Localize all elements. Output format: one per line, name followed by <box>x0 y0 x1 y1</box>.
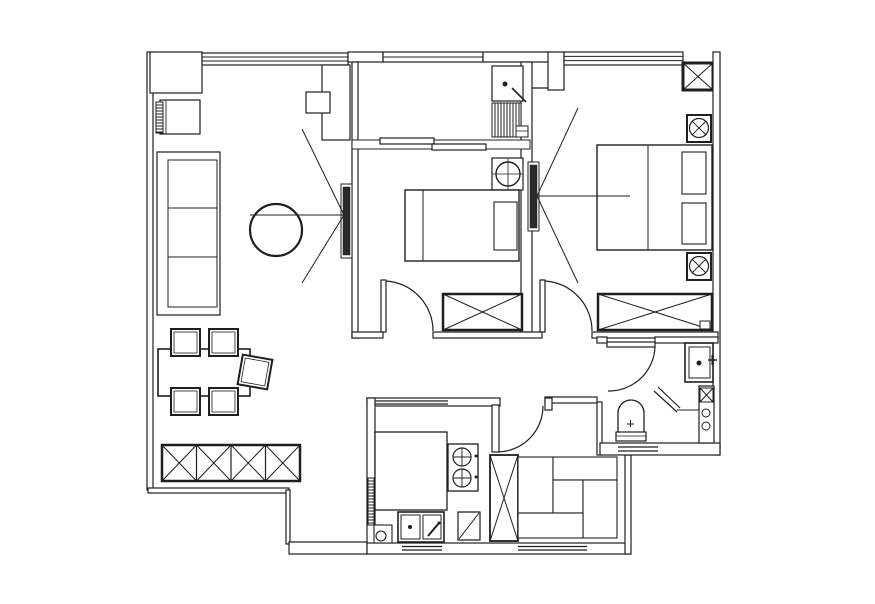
washing-machine <box>492 66 526 102</box>
shower-unit <box>654 386 714 443</box>
jamb-kitchen-door <box>545 398 552 410</box>
dining-chair-4 <box>209 388 238 415</box>
wall-bath-north-a <box>597 337 607 343</box>
coffee-table-round <box>250 204 302 256</box>
toilet <box>616 400 646 441</box>
wall-east-lower <box>625 455 631 554</box>
nightstand-bedroom2-b <box>687 253 711 280</box>
door-bathroom <box>607 342 655 391</box>
column-top-right <box>683 63 713 90</box>
dining-chair-1 <box>171 329 200 356</box>
entry-floor-mosaic <box>518 457 617 538</box>
floorplan-page <box>0 0 875 604</box>
dining-chair-3 <box>171 388 200 415</box>
wall-south-kitchen <box>367 543 630 554</box>
wall-step-west <box>286 490 290 544</box>
wardrobe-bedroom1 <box>443 294 522 330</box>
door-bedroom2 <box>540 280 592 332</box>
wall-pier-top-left <box>150 52 202 93</box>
wall-balcony-north-right <box>483 52 550 62</box>
wall-entry-north <box>545 397 597 403</box>
wall-bath-south <box>600 443 720 455</box>
window-bedroom2-north <box>564 52 683 65</box>
dining-chair-2 <box>209 329 238 356</box>
cabinet-entry-tall <box>490 455 518 541</box>
wall-living-south <box>148 488 289 493</box>
nightstand-bedroom1 <box>492 158 523 190</box>
floor-drain <box>374 525 392 543</box>
window-balcony-north <box>383 52 483 62</box>
nightstand-bedroom2-a <box>687 115 711 142</box>
cooktop <box>448 444 478 491</box>
door-kitchen <box>492 405 543 452</box>
wall-hall-north-a <box>352 332 383 338</box>
side-table-living <box>306 92 330 113</box>
wardrobe-bedroom2 <box>598 294 712 330</box>
wall-south-left <box>289 542 367 554</box>
window-kitchen-west <box>368 478 374 525</box>
wall-living-bedroom1 <box>352 62 358 338</box>
wall-kitchen-north <box>367 398 500 406</box>
wall-bath-north-b <box>655 337 718 343</box>
tv-living <box>341 184 352 258</box>
wall-left <box>147 52 153 490</box>
tv-cabinet-west <box>156 100 200 134</box>
kitchen-corner-unit <box>458 512 480 540</box>
door-bedroom1 <box>381 280 433 332</box>
sideboard <box>162 445 300 481</box>
tv-sightlines-bedroom2 <box>537 108 630 283</box>
floorplan-drawing <box>0 0 875 604</box>
wall-balcony-north-left <box>348 52 383 62</box>
bed-bedroom2 <box>597 145 712 250</box>
kitchen-counter <box>375 432 447 510</box>
kitchen-sink <box>398 512 444 542</box>
vanity-sink <box>685 343 717 382</box>
dining-chair-5 <box>238 355 273 390</box>
window-living-north <box>202 53 348 65</box>
bed-bedroom1 <box>405 190 519 261</box>
sofa <box>157 152 220 315</box>
wall-hall-north-b <box>433 332 542 338</box>
balcony-corner-unit <box>516 126 528 137</box>
balcony-sliding-door <box>352 138 530 150</box>
